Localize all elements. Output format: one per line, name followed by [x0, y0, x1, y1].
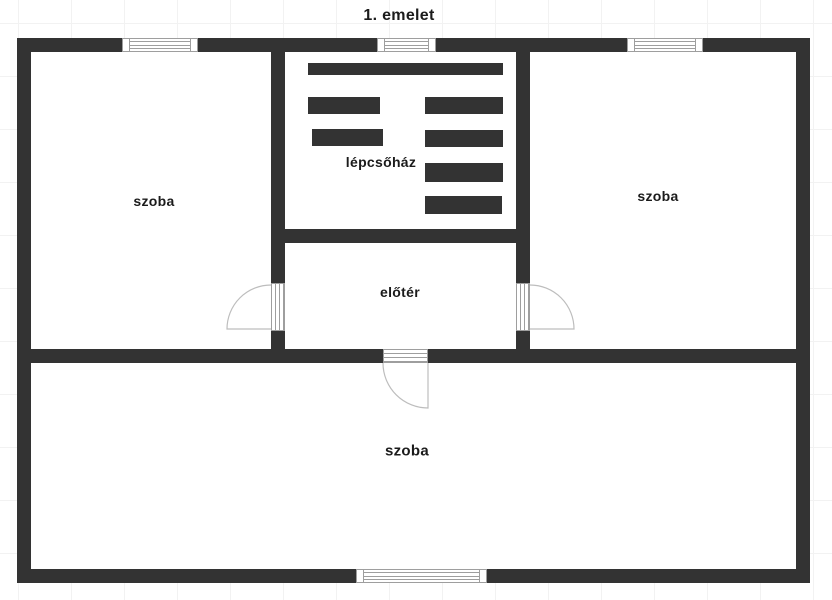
window-bottom [356, 569, 487, 583]
room-label-foyer: előtér [380, 284, 420, 300]
room-label-szoba-bottom: szoba [385, 443, 429, 460]
wall-mid-horizontal-left-segment [17, 349, 383, 363]
room-staircase-area [285, 52, 516, 229]
window-pane [635, 41, 695, 49]
wall-outer-left [17, 38, 31, 583]
room-label-szoba-right: szoba [637, 188, 678, 204]
room-label-staircase: lépcsőház [346, 154, 416, 170]
wall-staircase-foyer-divider [285, 229, 516, 243]
door-jamb-room-left [271, 283, 285, 331]
window-pane [385, 41, 428, 49]
door-jamb-room-bottom [383, 349, 428, 363]
wall-right-room-divider-lower [516, 331, 530, 363]
door-jamb-room-right [516, 283, 530, 331]
floor-plan-canvas: 1. emelet szoba lépcsőház szoba előtér s… [0, 0, 832, 600]
room-label-szoba-left: szoba [133, 193, 174, 209]
wall-outer-right [796, 38, 810, 583]
wall-left-room-divider-lower [271, 331, 285, 363]
window-top-center [377, 38, 436, 52]
window-top-left [122, 38, 198, 52]
window-top-right [627, 38, 703, 52]
room-szoba-bottom-area [31, 363, 796, 569]
wall-left-room-divider-upper [271, 38, 285, 283]
floor-title: 1. emelet [363, 7, 434, 25]
window-pane [364, 572, 479, 580]
wall-right-room-divider-upper [516, 38, 530, 283]
wall-mid-horizontal-right-segment [428, 349, 810, 363]
window-pane [130, 41, 190, 49]
